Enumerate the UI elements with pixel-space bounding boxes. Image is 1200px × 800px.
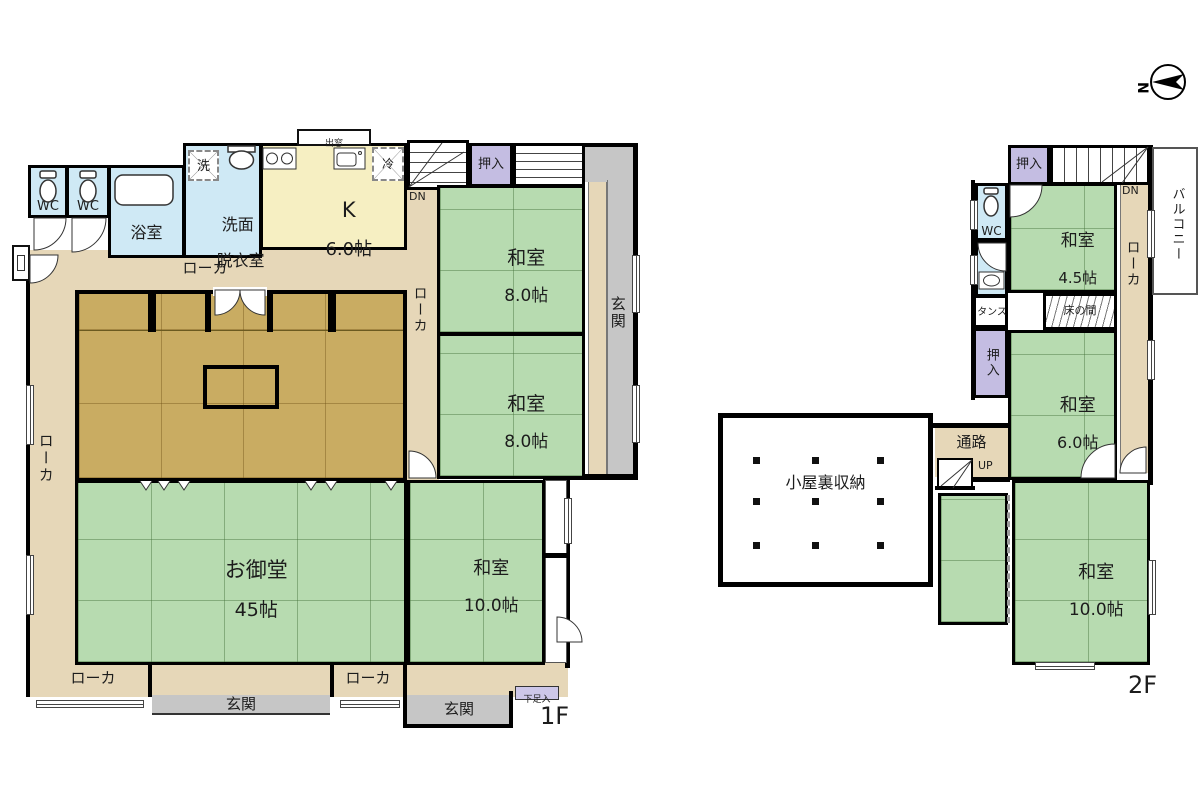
f1-hall-divider4: [328, 292, 336, 332]
washitsu8n-label: 和室 8.0帖: [440, 230, 582, 324]
window: [632, 255, 640, 313]
f1-room-bath: 浴室: [108, 165, 185, 258]
fridge-icon: 冷: [372, 147, 404, 181]
f2-room-washitsu-10-annex: [938, 493, 1008, 625]
f2-wc-label: WC: [981, 225, 1001, 238]
f1-shoe-cabinet: 下足入: [515, 686, 559, 700]
door-arc: [34, 218, 66, 250]
attic-post: [877, 542, 884, 549]
f1-wall-west: [26, 250, 30, 697]
f2-corridor-east: [1120, 182, 1148, 473]
f1-genkan-southeast-label: 玄関: [407, 701, 511, 718]
wc1-label: WC: [37, 200, 59, 215]
f1-genkan-south-label: 玄関: [152, 696, 330, 713]
f2-room-washitsu-6: 和室 6.0帖: [1008, 330, 1117, 480]
f2-room-washitsu-10: 和室 10.0帖: [1012, 480, 1150, 665]
f2-wall-passage-bottom: [972, 477, 1010, 482]
window: [970, 255, 978, 285]
floorplan-canvas: WC WC 浴室 洗面 脱衣室 K 6.0帖 出窓 洗 冷 押入 和室 8.0帖: [0, 0, 1200, 800]
kitchen-label: K 6.0帖: [263, 181, 404, 278]
window: [632, 385, 640, 443]
compass-needle: [1152, 74, 1184, 90]
f1-room-washitsu-8-north: 和室 8.0帖: [437, 185, 585, 335]
window: [1035, 662, 1095, 670]
f2-oshiire-mid-label: 押入: [983, 348, 998, 378]
f1-corridor-south-right-label: ローカ: [333, 670, 403, 687]
f1-room-wc2: WC: [66, 165, 110, 218]
f1-hall-door-gap: [213, 287, 267, 296]
f1-room-washitsu-10: 和室 10.0帖: [407, 480, 545, 665]
f2-dn-label: DN: [1122, 185, 1139, 197]
f1-corridor-west-label: ローカ: [37, 433, 54, 484]
f1-engawa-east: [588, 180, 607, 474]
f2-corridor-east-label: ローカ: [1124, 240, 1140, 288]
window: [36, 700, 144, 708]
attic-post: [812, 457, 819, 464]
f2-closet-mid: 押入: [973, 328, 1008, 398]
bath-label: 浴室: [111, 224, 182, 242]
washitsu10-label: 和室 10.0帖: [410, 541, 542, 634]
f1-bay-window: 出窓: [297, 129, 371, 146]
f1-west-alcove-item: [17, 255, 25, 271]
washer-label: 洗: [190, 160, 217, 175]
f1-dn-label: DN: [409, 191, 426, 203]
f1-hall-divider1: [148, 292, 156, 332]
f2-passage-label: 通路: [935, 434, 1008, 451]
f2-closet-north: 押入: [1008, 145, 1050, 185]
fridge-label: 冷: [374, 158, 402, 171]
f2-oshiire-north-label: 押入: [1016, 158, 1042, 173]
bay-window-label: 出窓: [325, 139, 343, 149]
window: [1147, 210, 1155, 258]
washing-machine-icon: 洗: [188, 150, 219, 181]
f1-west-alcove-box: [12, 245, 30, 281]
f2-stairs-up: [937, 458, 973, 488]
f1-room-washitsu-8-south: 和室 8.0帖: [437, 333, 585, 479]
f2-fusuma-divider: [1007, 495, 1010, 623]
f1-hall-divider2: [205, 292, 211, 332]
attic-post: [753, 457, 760, 464]
f2-washitsu6-label: 和室 6.0帖: [1011, 378, 1114, 470]
f1-wall-stub1: [148, 663, 152, 697]
window: [1147, 340, 1155, 380]
f1-room-wc1: WC: [28, 165, 68, 218]
window: [340, 700, 400, 708]
f2-wall-passage-top: [933, 423, 1010, 428]
f1-stairs-down: [407, 140, 469, 190]
compass-circle: [1151, 65, 1185, 99]
f2-tansu-label: タンス: [973, 307, 1011, 318]
f2-washitsu45-label: 和室 4.5帖: [1011, 214, 1114, 305]
window: [970, 200, 978, 230]
f1-corridor-top-label: ローカ: [170, 260, 240, 277]
f2-room-washbasin: [975, 241, 1008, 297]
f1-hall-alcove-line: [79, 330, 403, 331]
window: [1148, 560, 1156, 615]
f2-floor-label: 2F: [1128, 672, 1157, 699]
f1-wall-stub3: [403, 663, 407, 728]
f2-balcony-label: バルコニー: [1169, 187, 1184, 262]
window: [26, 555, 34, 615]
compass: N: [1134, 65, 1185, 99]
f2-balcony: バルコニー: [1152, 147, 1198, 295]
wc2-label: WC: [77, 200, 99, 215]
attic-post: [812, 542, 819, 549]
f1-genkan-east-cap: [585, 145, 635, 182]
window: [26, 385, 34, 445]
attic-post: [753, 498, 760, 505]
f2-tansu: タンス: [973, 295, 1008, 328]
f1-wall-genkan-se-bottom: [403, 724, 513, 728]
f1-engawa-se-wall: [545, 553, 567, 558]
window: [564, 498, 572, 544]
f1-floor-label: 1F: [540, 703, 569, 730]
attic-post: [877, 498, 884, 505]
f1-closet-oshiire: 押入: [469, 143, 513, 187]
hall-label: お御堂 45帖: [78, 541, 404, 640]
f1-altar-platform: [203, 365, 279, 409]
door-arc: [72, 218, 106, 252]
f1-shelf-closet: [513, 143, 585, 187]
f1-room-hall-tatami: お御堂 45帖: [75, 480, 407, 665]
f2-attic-storage: 小屋裏収納: [718, 413, 933, 587]
f2-stairs-down: [1050, 145, 1150, 185]
attic-post: [753, 542, 760, 549]
f2-tokonoma-label: 床の間: [1046, 305, 1114, 317]
f1-genkan-east-label: 玄関: [609, 296, 626, 330]
f2-room-washitsu-45: 和室 4.5帖: [1008, 183, 1117, 293]
f1-wall-genkan-top: [583, 143, 637, 147]
f2-washitsu10-label: 和室 10.0帖: [1015, 545, 1147, 638]
oshiire-label: 押入: [478, 158, 504, 173]
washitsu8s-label: 和室 8.0帖: [440, 376, 582, 470]
f2-up-label: UP: [978, 460, 993, 472]
f1-corridor-south-left-label: ローカ: [58, 670, 128, 687]
f2-room-wc: WC: [975, 183, 1008, 241]
f1-corridor-center: [407, 188, 439, 480]
f2-attic-label: 小屋裏収納: [723, 474, 928, 492]
compass-north-label: N: [1134, 82, 1150, 94]
attic-post: [877, 457, 884, 464]
f1-corridor-center-label: ローカ: [411, 286, 427, 334]
attic-post: [812, 498, 819, 505]
f1-hall-divider3: [267, 292, 273, 332]
